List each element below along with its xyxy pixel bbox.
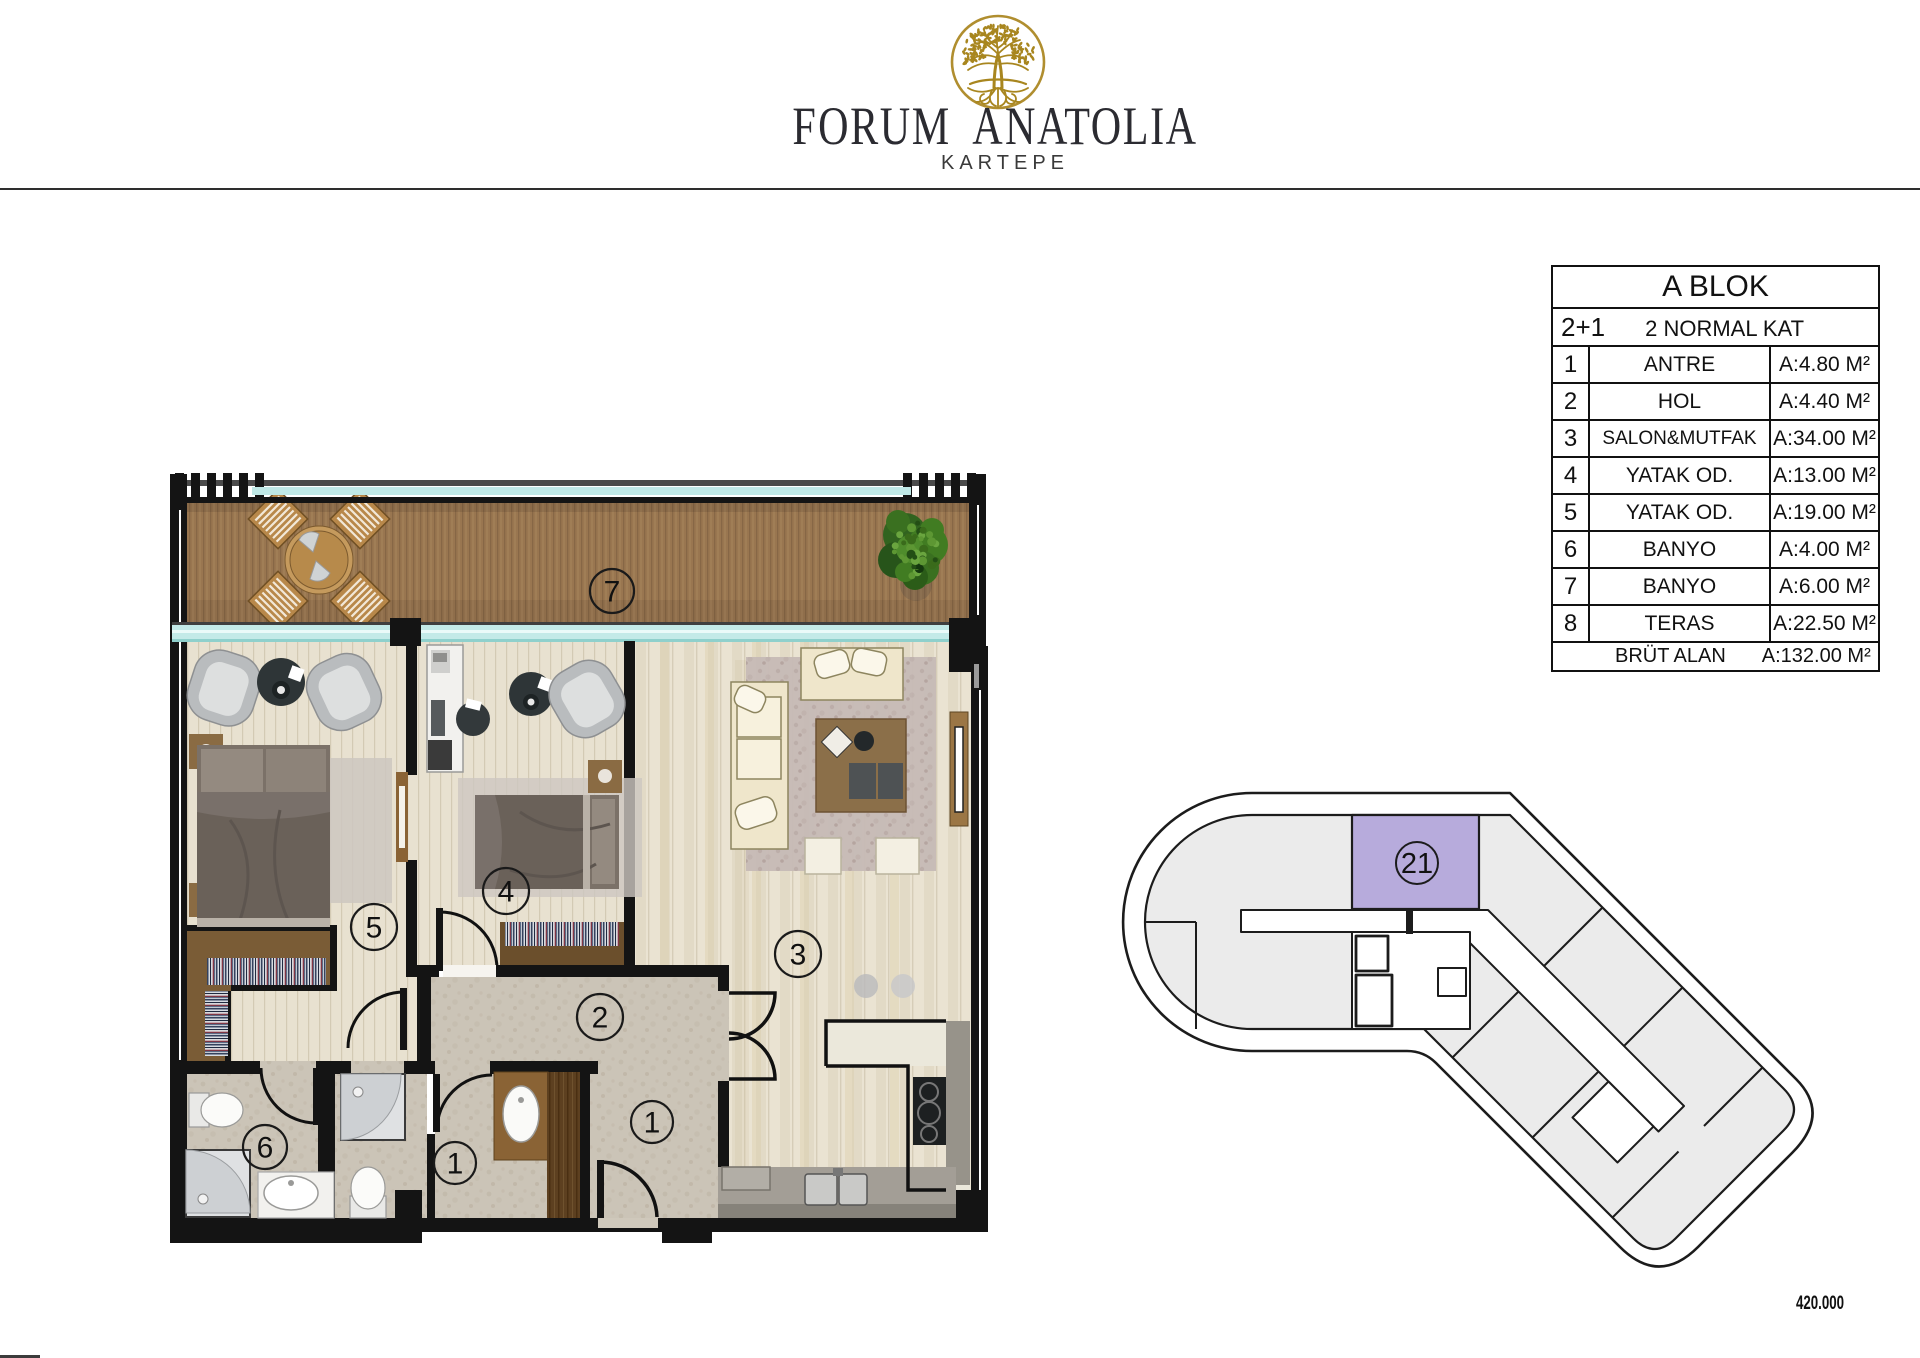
svg-text:6: 6: [257, 1132, 274, 1165]
svg-text:3: 3: [790, 939, 807, 972]
svg-text:1: 1: [644, 1107, 661, 1140]
svg-text:5: 5: [366, 912, 383, 945]
svg-text:1: 1: [447, 1148, 464, 1181]
svg-text:2: 2: [592, 1002, 609, 1035]
svg-text:21: 21: [1401, 848, 1433, 880]
svg-text:4: 4: [498, 876, 515, 909]
svg-text:7: 7: [604, 576, 621, 609]
